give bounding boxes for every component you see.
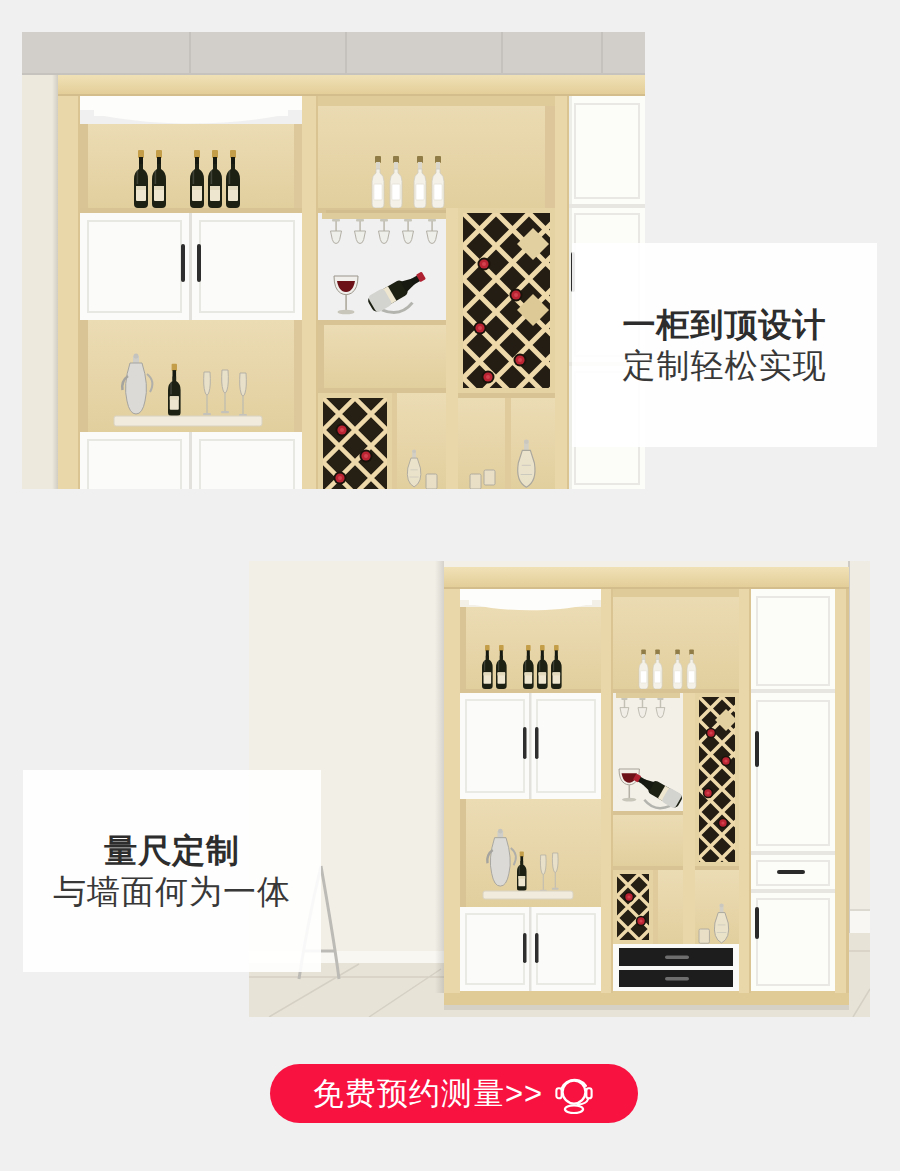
wall-panels <box>22 32 645 75</box>
diamond-wine-rack-large <box>458 208 555 393</box>
cta-button[interactable]: 免费预约测量>> <box>270 1064 638 1123</box>
diamond-wine-rack-small-2 <box>613 870 653 944</box>
arch-molding <box>80 96 302 124</box>
diamond-wine-rack-small <box>318 393 392 489</box>
tall-cabinet-doors-2 <box>751 589 835 991</box>
promo-page: 一柜到顶设计 定制轻松实现 <box>0 0 900 1171</box>
stemware-rack <box>322 210 450 244</box>
feature-title: 一柜到顶设计 <box>623 304 827 345</box>
feature-title-2: 量尺定制 <box>104 830 240 871</box>
wine-bottle-stand <box>366 267 434 323</box>
feature-subtitle: 定制轻松实现 <box>623 345 827 386</box>
photo-wine-cabinet-room <box>249 561 870 1017</box>
headset-icon <box>553 1074 595 1114</box>
black-drawers <box>613 944 739 991</box>
cta-label: 免费预约测量>> <box>313 1073 543 1115</box>
feature-card-top: 一柜到顶设计 定制轻松实现 <box>572 243 877 447</box>
feature-card-bottom: 量尺定制 与墙面何为一体 <box>23 770 321 972</box>
photo-wine-cabinet-closeup <box>22 32 645 489</box>
feature-subtitle-2: 与墙面何为一体 <box>53 871 291 912</box>
wine-cabinet <box>58 75 645 489</box>
upper-cabinet-doors <box>80 213 302 320</box>
diamond-wine-rack-large-2 <box>695 693 739 866</box>
red-wine-glass <box>334 276 358 314</box>
lower-cabinet-doors <box>80 432 302 489</box>
